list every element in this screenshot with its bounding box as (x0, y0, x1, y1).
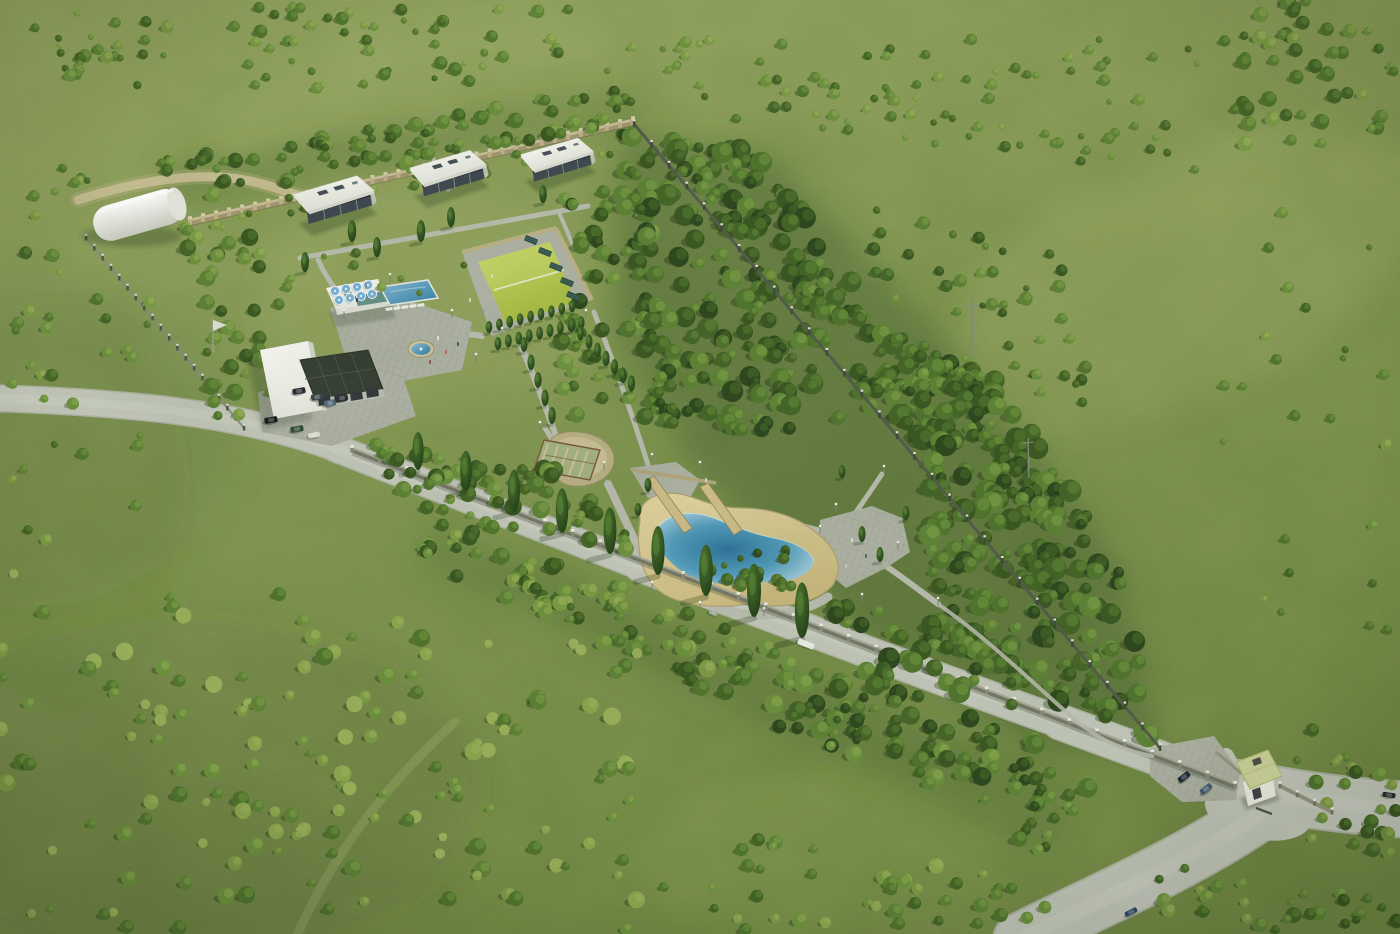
texture-overlays (0, 0, 1400, 934)
aerial-render (0, 0, 1400, 934)
scene-svg (0, 0, 1400, 934)
